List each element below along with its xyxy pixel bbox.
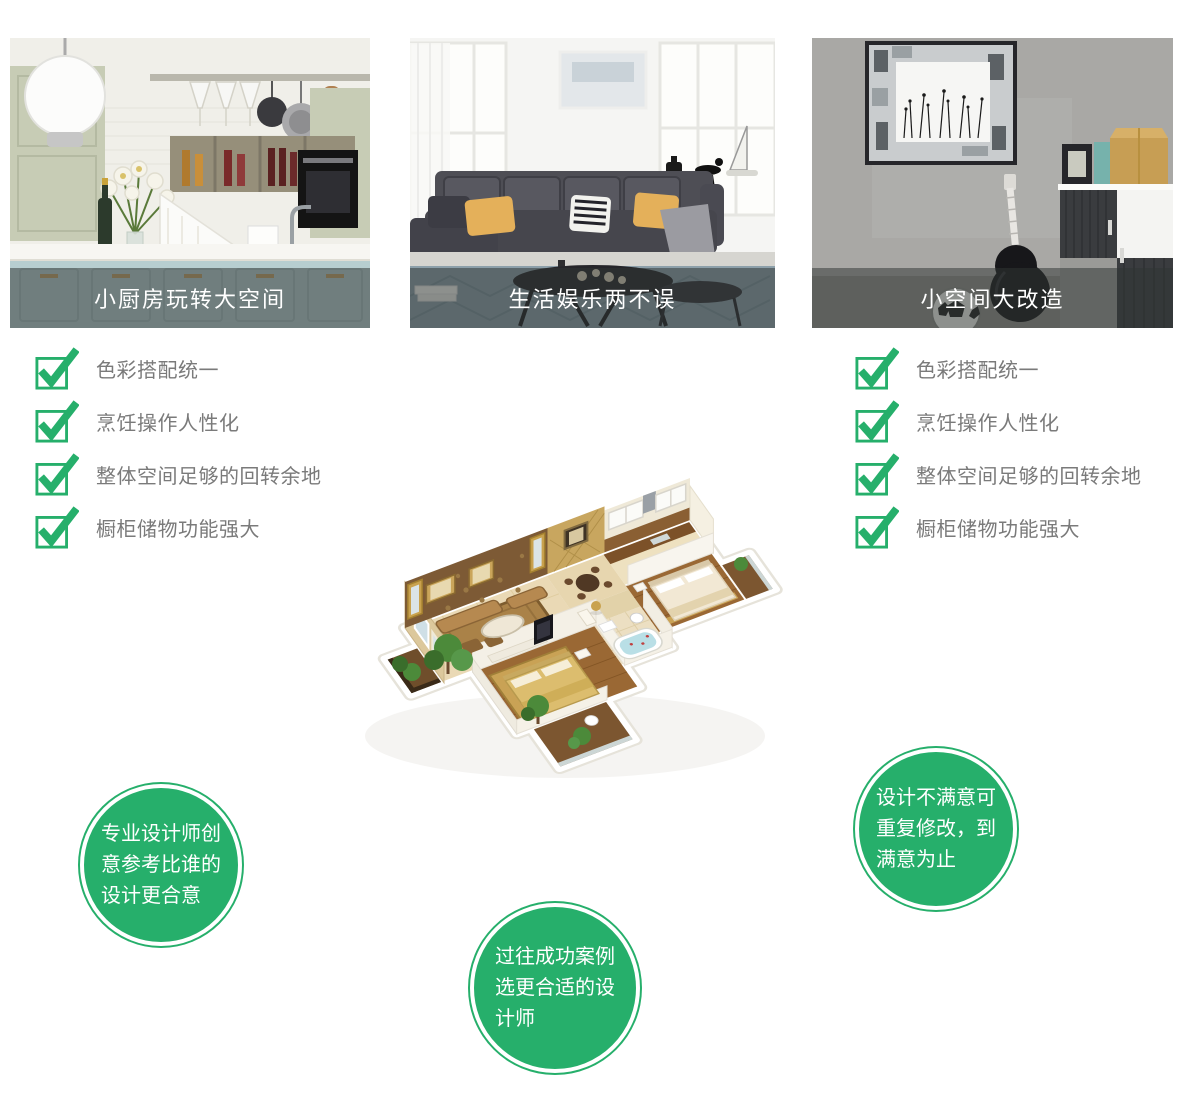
promo-page: 小厨房玩转大空间 — [0, 0, 1180, 1095]
checklist-item-label: 色彩搭配统一 — [916, 354, 1039, 383]
floorplan-3d-render — [330, 478, 790, 823]
checklist-item: 烹饪操作人性化 — [855, 400, 1142, 442]
benefit-bubble-cases: 过往成功案例 选更合适的设 计师 — [470, 903, 640, 1073]
sign-card — [248, 226, 278, 246]
checklist-item-label: 烹饪操作人性化 — [96, 407, 240, 436]
feature-card-kitchen: 小厨房玩转大空间 — [10, 38, 370, 328]
checklist-item-label: 橱柜储物功能强大 — [96, 513, 260, 542]
checklist-item: 橱柜储物功能强大 — [855, 506, 1142, 548]
benefit-bubble-designer: 专业设计师创 意参考比谁的 设计更合意 — [80, 784, 242, 946]
checkbox-check-icon — [35, 346, 79, 390]
book — [1094, 142, 1110, 184]
checklist-item-label: 色彩搭配统一 — [96, 354, 219, 383]
checkbox-check-icon — [855, 399, 899, 443]
bubble-text: 过往成功案例 选更合适的设 计师 — [495, 942, 615, 1035]
checklist-item: 整体空间足够的回转余地 — [35, 453, 322, 495]
plant — [734, 557, 748, 571]
checklist-left: 色彩搭配统一 烹饪操作人性化 整体空间足够的回转余地 橱柜储物功能强大 — [35, 347, 322, 559]
checklist-item: 色彩搭配统一 — [35, 347, 322, 389]
bubble-text: 设计不满意可 重复修改，到 满意为止 — [876, 783, 996, 876]
card-caption-smallroom: 小空间大改造 — [812, 268, 1173, 328]
feature-card-livingroom: 生活娱乐两不误 — [410, 38, 775, 328]
checkbox-check-icon — [855, 346, 899, 390]
hanging-rail — [150, 74, 370, 81]
checkbox-check-icon — [855, 505, 899, 549]
gold-vase — [591, 601, 601, 611]
checklist-right: 色彩搭配统一 烹饪操作人性化 整体空间足够的回转余地 橱柜储物功能强大 — [855, 347, 1142, 559]
checkbox-check-icon — [35, 399, 79, 443]
checklist-item-label: 烹饪操作人性化 — [916, 407, 1060, 436]
checklist-item-label: 整体空间足够的回转余地 — [916, 460, 1142, 489]
card-caption-livingroom: 生活娱乐两不误 — [410, 268, 775, 328]
framed-art — [867, 43, 1015, 163]
checklist-item: 橱柜储物功能强大 — [35, 506, 322, 548]
feature-card-smallroom: 小空间大改造 — [812, 38, 1173, 328]
benefit-bubble-revision: 设计不满意可 重复修改，到 满意为止 — [855, 748, 1017, 910]
bubble-text: 专业设计师创 意参考比谁的 设计更合意 — [101, 819, 221, 912]
checklist-item: 烹饪操作人性化 — [35, 400, 322, 442]
checklist-item-label: 整体空间足够的回转余地 — [96, 460, 322, 489]
checkbox-check-icon — [35, 452, 79, 496]
card-caption-kitchen: 小厨房玩转大空间 — [10, 268, 370, 328]
checkbox-check-icon — [855, 452, 899, 496]
checkbox-check-icon — [35, 505, 79, 549]
checklist-item-label: 橱柜储物功能强大 — [916, 513, 1080, 542]
checklist-item: 整体空间足够的回转余地 — [855, 453, 1142, 495]
checklist-item: 色彩搭配统一 — [855, 347, 1142, 389]
kraft-box — [1110, 128, 1168, 184]
floorplan-illustration — [330, 478, 790, 823]
photo-frame — [1062, 144, 1092, 184]
